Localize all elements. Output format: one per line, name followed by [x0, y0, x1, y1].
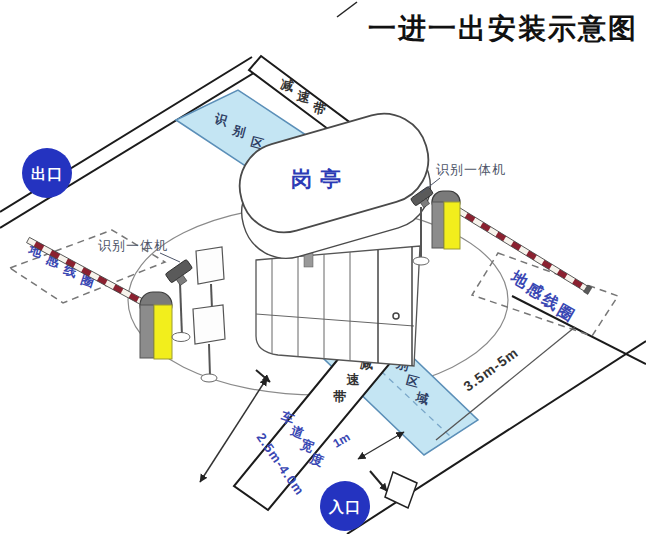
- recognition-machine-right-label: 识别一体机: [436, 162, 506, 177]
- exit-badge: 出口: [22, 148, 72, 198]
- diagram-canvas: 减速带 识别区域 地感线圈 地感线圈 识别区域 减速带 车道宽度 2.5m-4.…: [0, 0, 646, 534]
- island-direction-arrow: [256, 370, 270, 382]
- booth-body: [256, 246, 420, 366]
- barrier-machine-left: [140, 292, 172, 359]
- exit-badge-label: 出口: [31, 165, 63, 182]
- band-end-cap: [385, 472, 417, 508]
- coil-distance-label: 3.5m-5m: [460, 344, 521, 394]
- area-gap-label: 1m: [331, 430, 353, 451]
- area-gap-arrow: [358, 432, 404, 459]
- booth-label: 岗亭: [291, 167, 349, 190]
- entrance-badge-label: 入口: [328, 498, 361, 515]
- speed-bump-top-label: 减速带: [273, 69, 339, 125]
- entrance-badge: 入口: [320, 481, 370, 531]
- barrier-machine-right: [432, 191, 460, 249]
- recognition-machine-left-label: 识别一体机: [98, 238, 168, 253]
- sign-board-lower: [193, 305, 225, 382]
- corner-tick: [337, 2, 357, 17]
- coil-distance-line: [436, 327, 575, 440]
- diagram-title: 一进一出安装示意图: [368, 13, 638, 44]
- installation-diagram: 减速带 识别区域 地感线圈 地感线圈 识别区域 减速带 车道宽度 2.5m-4.…: [0, 0, 646, 534]
- entrance-direction-arrow: [370, 471, 387, 491]
